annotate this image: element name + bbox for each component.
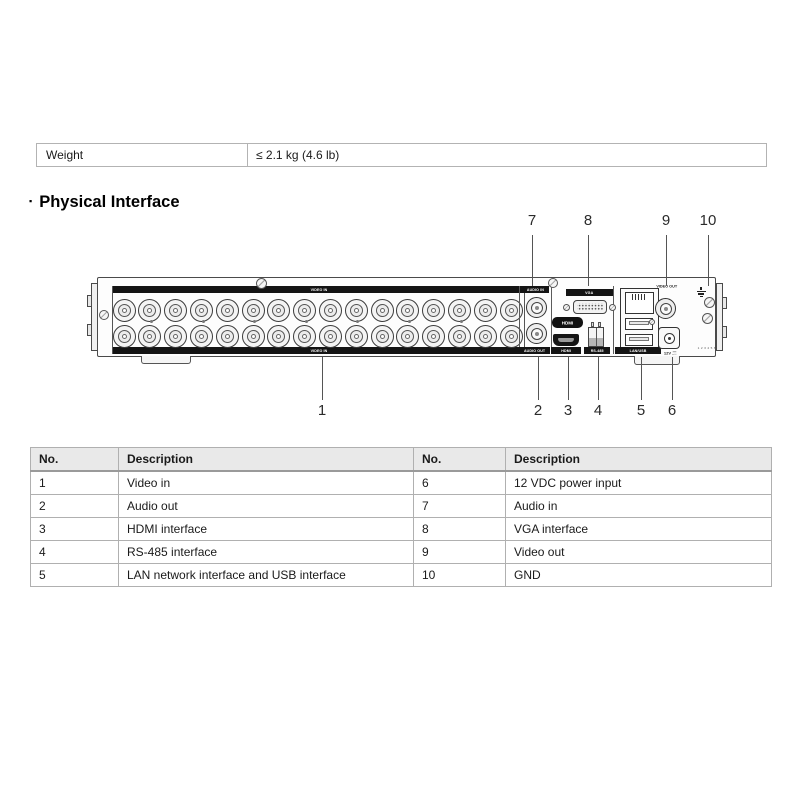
column-header: No. (31, 448, 119, 472)
panel-screw-dot (150, 320, 153, 323)
bnc-connector (474, 325, 497, 348)
callout-number-7: 7 (528, 212, 536, 229)
bnc-connector (138, 299, 161, 322)
usb-port (625, 334, 653, 346)
bnc-connector (190, 299, 213, 322)
dc-symbol-icon (672, 352, 676, 355)
bnc-connector (396, 299, 419, 322)
bnc-connector (267, 299, 290, 322)
vga-screw-hole (563, 304, 570, 311)
rs485-label: RS-485 (584, 347, 610, 354)
bnc-connector (448, 299, 471, 322)
table-cell: VGA interface (506, 518, 772, 541)
datasheet-page: Weight ≤ 2.1 kg (4.6 lb) ▪Physical Inter… (0, 0, 800, 800)
callout-leader-line (588, 235, 589, 286)
bnc-connector (242, 325, 265, 348)
column-header: Description (506, 448, 772, 472)
bnc-connector (371, 325, 394, 348)
lan-usb-label: LAN/USB (615, 347, 661, 354)
callout-leader-line (538, 357, 539, 400)
table-row: 3HDMI interface8VGA interface (31, 518, 772, 541)
screw (256, 278, 267, 289)
callout-number-1: 1 (318, 402, 326, 419)
screw (548, 278, 558, 288)
column-header: No. (414, 448, 506, 472)
video-in-bottom-label: VIDEO IN (113, 347, 524, 354)
table-cell: Video out (506, 541, 772, 564)
audio-out-jack (526, 323, 547, 344)
bnc-connector (216, 325, 239, 348)
power-label: 12V (660, 351, 680, 356)
bnc-connector (371, 299, 394, 322)
video-in-top-label: VIDEO IN (113, 286, 524, 293)
bnc-connector (267, 325, 290, 348)
callout-leader-line (532, 235, 533, 286)
bnc-connector (242, 299, 265, 322)
bnc-connector (138, 325, 161, 348)
hdmi-port (553, 334, 579, 346)
callout-number-10: 10 (700, 212, 717, 229)
callout-leader-line (598, 357, 599, 400)
vga-pin-grid (577, 303, 603, 311)
table-header-row: No. Description No. Description (31, 448, 772, 472)
callout-number-2: 2 (534, 402, 542, 419)
panel-right-tab (722, 326, 727, 338)
panel-left-tab (87, 324, 92, 336)
column-header: Description (119, 448, 414, 472)
vga-label: VGA (566, 289, 613, 296)
screw (649, 319, 655, 325)
audio-in-label: AUDIO IN (521, 286, 549, 293)
table-cell: Audio out (119, 495, 414, 518)
panel-screw-dot (202, 320, 205, 323)
bnc-connector (345, 299, 368, 322)
rs485-terminal (588, 327, 604, 347)
callout-number-6: 6 (668, 402, 676, 419)
bnc-connector (319, 325, 342, 348)
callout-leader-line (568, 357, 569, 400)
table-cell: 8 (414, 518, 506, 541)
table-cell: LAN network interface and USB interface (119, 564, 414, 587)
table-row: 1Video in612 VDC power input (31, 471, 772, 495)
audio-out-label: AUDIO OUT (519, 347, 550, 354)
table-cell: Video in (119, 471, 414, 495)
bnc-connector (422, 299, 445, 322)
bnc-connector (293, 325, 316, 348)
table-row: 5LAN network interface and USB interface… (31, 564, 772, 587)
screw (702, 313, 713, 324)
callout-number-9: 9 (662, 212, 670, 229)
callout-leader-line (641, 357, 642, 400)
table-row: 4RS-485 interface9Video out (31, 541, 772, 564)
hdmi-logo: HDMI (552, 317, 583, 328)
bnc-connector (190, 325, 213, 348)
callout-leader-line (672, 357, 673, 400)
callout-number-3: 3 (564, 402, 572, 419)
callout-leader-line (708, 235, 709, 286)
bnc-connector (113, 299, 136, 322)
table-cell: HDMI interface (119, 518, 414, 541)
vga-connector (573, 300, 607, 314)
panel-screw-dot (408, 320, 411, 323)
screw (704, 297, 715, 308)
audio-in-jack (526, 297, 547, 318)
rear-panel-diagram: VIDEO IN VIDEO IN AUDIO IN AUDIO OUT VGA… (0, 0, 800, 800)
callout-leader-line (666, 235, 667, 286)
table-cell: RS-485 interface (119, 541, 414, 564)
callout-number-8: 8 (584, 212, 592, 229)
video-out-label: VIDEO OUT (646, 282, 688, 289)
panel-screw-dot (305, 320, 308, 323)
table-row: 2Audio out7Audio in (31, 495, 772, 518)
table-cell: GND (506, 564, 772, 587)
panel-right-ear (716, 283, 723, 351)
bnc-connector (164, 325, 187, 348)
video-out-bnc (655, 298, 676, 319)
panel-left-tab (87, 295, 92, 307)
bnc-connector (216, 299, 239, 322)
bnc-connector (319, 299, 342, 322)
table-cell: Audio in (506, 495, 772, 518)
callout-number-5: 5 (637, 402, 645, 419)
panel-foot (141, 356, 191, 364)
serial-marks: 1 2 3 4 5 6 (692, 343, 722, 353)
bnc-connector (164, 299, 187, 322)
bnc-connector (474, 299, 497, 322)
table-cell: 12 VDC power input (506, 471, 772, 495)
callout-leader-line (322, 357, 323, 400)
table-cell: 6 (414, 471, 506, 495)
panel-screw-dot (460, 320, 463, 323)
vga-screw-hole (609, 304, 616, 311)
table-cell: 5 (31, 564, 119, 587)
power-jack (658, 327, 680, 349)
ethernet-port (625, 292, 654, 314)
callout-number-4: 4 (594, 402, 602, 419)
bnc-connector (448, 325, 471, 348)
bnc-connector (422, 325, 445, 348)
table-cell: 4 (31, 541, 119, 564)
table-cell: 10 (414, 564, 506, 587)
section-divider (519, 286, 520, 354)
table-cell: 9 (414, 541, 506, 564)
hdmi-label: HDMI (551, 347, 581, 354)
bnc-connector (113, 325, 136, 348)
table-cell: 1 (31, 471, 119, 495)
section-divider (613, 286, 614, 354)
panel-right-tab (722, 297, 727, 309)
table-cell: 3 (31, 518, 119, 541)
bnc-connector (396, 325, 419, 348)
screw (99, 310, 109, 320)
table-cell: 2 (31, 495, 119, 518)
bnc-connector (345, 325, 368, 348)
bnc-connector (293, 299, 316, 322)
table-cell: 7 (414, 495, 506, 518)
port-description-table: No. Description No. Description 1Video i… (30, 447, 772, 587)
